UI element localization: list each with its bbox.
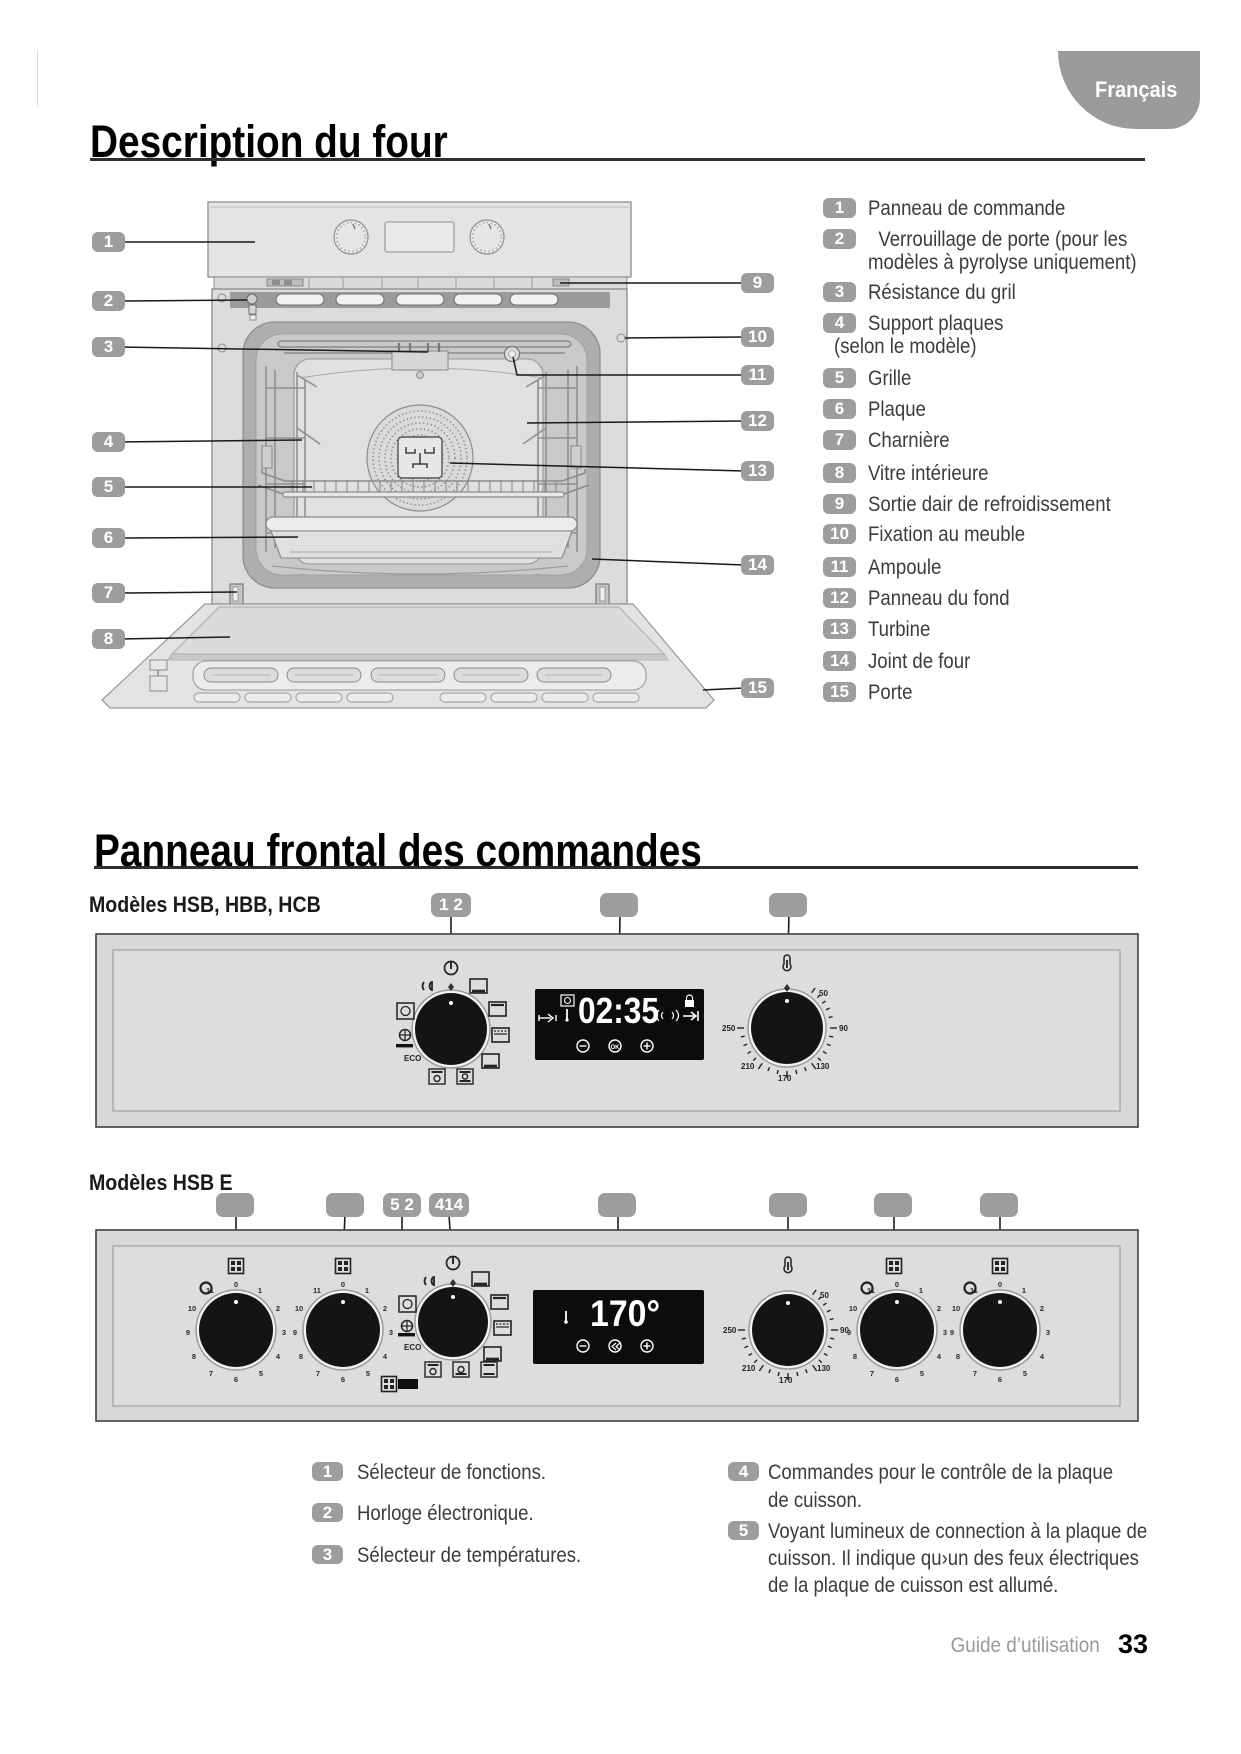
svg-text:ECO: ECO [404,1054,421,1063]
svg-text:170: 170 [779,1376,793,1385]
svg-text:130: 130 [817,1364,831,1373]
svg-text:50: 50 [820,1291,829,1300]
svg-text:210: 210 [741,1062,755,1071]
svg-text:ECO: ECO [404,1343,421,1352]
svg-text:50: 50 [819,989,828,998]
svg-text:210: 210 [742,1364,756,1373]
svg-text:90: 90 [839,1024,848,1033]
svg-text:170°: 170° [590,1293,660,1334]
svg-text:250: 250 [722,1024,736,1033]
svg-text:250: 250 [723,1326,737,1335]
svg-text:130: 130 [816,1062,830,1071]
svg-text:02:35: 02:35 [578,990,659,1031]
svg-text:OK: OK [611,1045,621,1051]
svg-text:170: 170 [778,1074,792,1083]
